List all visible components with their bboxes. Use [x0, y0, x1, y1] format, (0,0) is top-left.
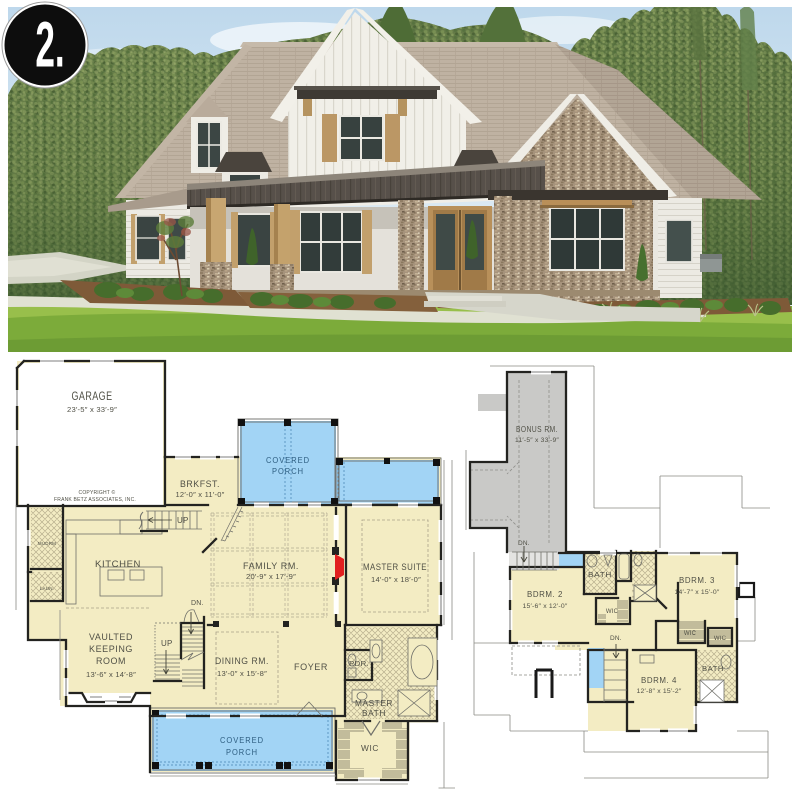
- svg-text:BDRM. 3: BDRM. 3: [679, 575, 715, 585]
- svg-text:BONUS RM.: BONUS RM.: [516, 424, 558, 434]
- svg-text:BATH: BATH: [702, 664, 724, 673]
- svg-text:PORCH: PORCH: [226, 747, 258, 757]
- svg-text:LAUN.: LAUN.: [40, 586, 54, 591]
- svg-text:14′-7″ x 15′-0″: 14′-7″ x 15′-0″: [675, 589, 721, 596]
- svg-text:FAMILY RM.: FAMILY RM.: [243, 561, 299, 572]
- svg-text:BDRM. 2: BDRM. 2: [527, 589, 563, 599]
- svg-text:ROOM: ROOM: [96, 656, 126, 667]
- svg-text:WIC: WIC: [361, 744, 379, 753]
- svg-text:MUDRM: MUDRM: [38, 541, 56, 546]
- svg-text:PDR.: PDR.: [349, 661, 369, 668]
- svg-text:MASTER SUITE: MASTER SUITE: [363, 562, 427, 573]
- svg-text:PORCH: PORCH: [272, 466, 304, 476]
- svg-text:2.: 2.: [35, 8, 64, 80]
- svg-text:VAULTED: VAULTED: [89, 632, 133, 643]
- svg-text:KITCHEN: KITCHEN: [95, 559, 141, 570]
- svg-text:23′-5″ x 33′-9″: 23′-5″ x 33′-9″: [67, 405, 117, 414]
- svg-text:MASTER: MASTER: [355, 698, 393, 708]
- svg-text:UP: UP: [177, 516, 189, 525]
- svg-text:DN.: DN.: [518, 540, 530, 547]
- svg-text:DN.: DN.: [610, 635, 622, 642]
- svg-text:GARAGE: GARAGE: [72, 389, 113, 403]
- svg-text:COVERED: COVERED: [220, 735, 264, 745]
- svg-text:15′-6″ x 12′-0″: 15′-6″ x 12′-0″: [523, 603, 569, 610]
- svg-text:13′-6″ x 14′-8″: 13′-6″ x 14′-8″: [86, 672, 136, 679]
- svg-text:14′-0″ x 18′-0″: 14′-0″ x 18′-0″: [371, 577, 421, 584]
- svg-text:WIC: WIC: [684, 631, 697, 637]
- svg-text:12′-8″ x 15′-2″: 12′-8″ x 15′-2″: [637, 688, 683, 695]
- svg-text:11′-5″ x 33′-9″: 11′-5″ x 33′-9″: [515, 437, 560, 444]
- svg-text:WIC: WIC: [606, 609, 619, 615]
- svg-text:20′-9″ x 17′-9″: 20′-9″ x 17′-9″: [246, 574, 296, 581]
- svg-text:COPYRIGHT ©: COPYRIGHT ©: [79, 489, 116, 496]
- svg-text:DINING RM.: DINING RM.: [215, 656, 269, 667]
- svg-text:WIC: WIC: [714, 636, 727, 642]
- svg-text:13′-0″ x 15′-8″: 13′-0″ x 15′-8″: [217, 671, 267, 678]
- svg-text:BATH: BATH: [588, 570, 612, 579]
- svg-text:12′-0″ x 11′-0″: 12′-0″ x 11′-0″: [176, 492, 225, 499]
- svg-text:BRKFST.: BRKFST.: [180, 479, 220, 490]
- svg-text:KEEPING: KEEPING: [89, 644, 133, 655]
- svg-text:UP: UP: [161, 639, 173, 648]
- svg-text:BATH: BATH: [362, 708, 386, 718]
- svg-text:DN.: DN.: [191, 600, 204, 607]
- svg-text:BDRM. 4: BDRM. 4: [641, 675, 677, 685]
- svg-text:FRANK BETZ ASSOCIATES, INC.: FRANK BETZ ASSOCIATES, INC.: [54, 497, 136, 503]
- svg-text:COVERED: COVERED: [266, 455, 310, 465]
- svg-text:FOYER: FOYER: [294, 662, 328, 673]
